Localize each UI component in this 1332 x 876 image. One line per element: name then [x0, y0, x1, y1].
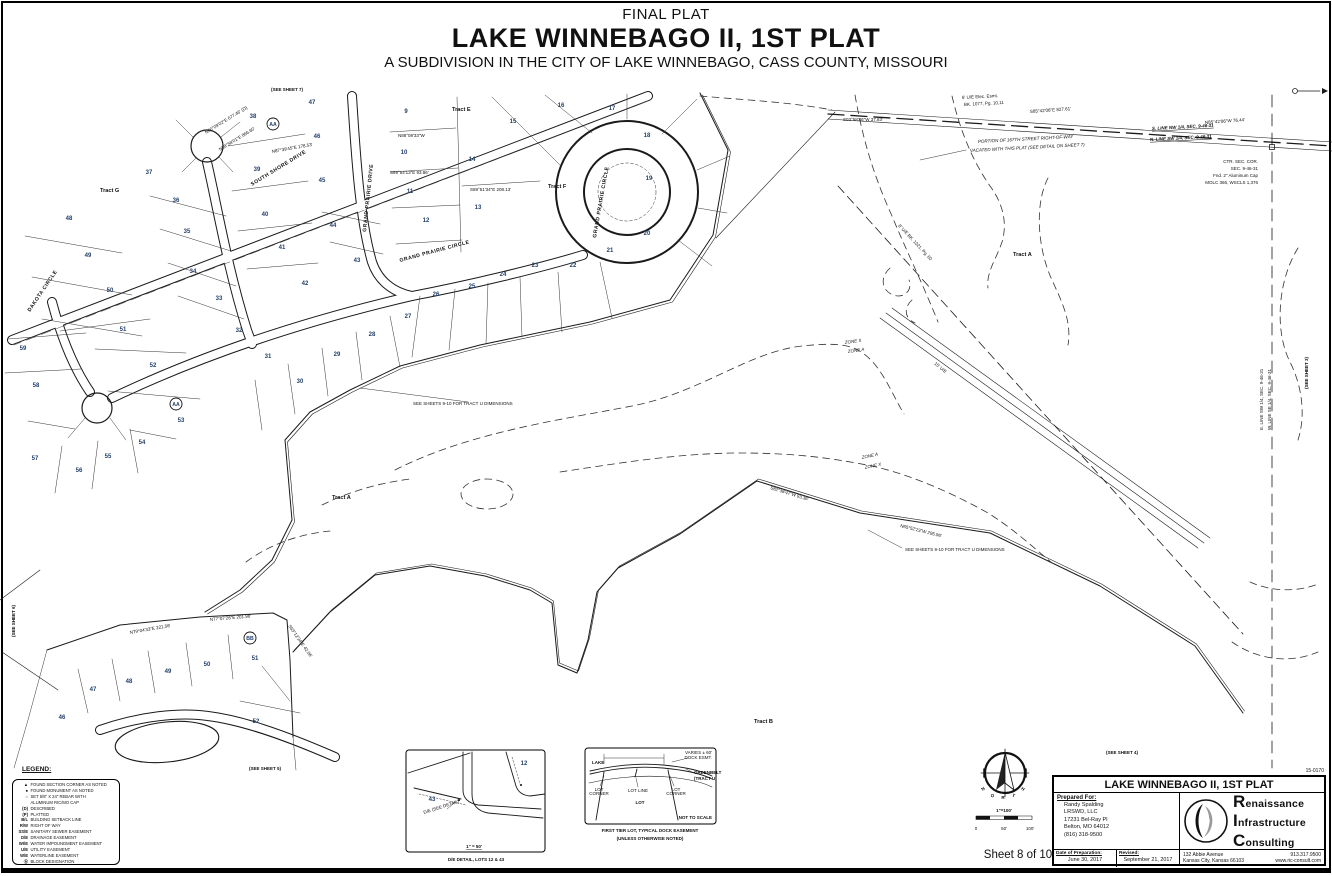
map-note: S89°54'13"E 93.86' [390, 170, 429, 175]
lot-number: 59 [20, 346, 27, 352]
lot-number: 30 [297, 379, 304, 385]
lot-number: 48 [66, 216, 73, 222]
firm-name: Renaissance Infrastructure Consulting [1229, 792, 1306, 849]
north-letter: N [980, 786, 986, 792]
date-value: June 30, 2017 [1056, 856, 1114, 863]
map-note: ZONE X [843, 338, 862, 346]
lot-number: 50 [107, 288, 114, 294]
lot-number: 39 [254, 167, 261, 173]
map-note: 1" = 50' [466, 844, 482, 849]
map-note: FIRST TIER LOT, TYPICAL DOCK EASEMENT [602, 828, 699, 833]
scale-text: 1"=100' [996, 808, 1012, 813]
map-note: CORNER [589, 791, 609, 796]
legend-box: ▲FOUND SECTION CORNER AS NOTED●FOUND MON… [12, 779, 120, 865]
client-address-line: 17231 Bel-Ray Pl [1064, 817, 1176, 824]
legend-item: ○SET 5/8" X 24" REBAR WITH [15, 794, 117, 800]
firm-address: 132 Abbie Avenue Kansas City, Kansas 661… [1183, 852, 1244, 865]
lot-number: 49 [85, 253, 92, 259]
map-note: CTR. SEC. COR. [1223, 159, 1258, 164]
scale-tick-label: 100' [1026, 826, 1035, 831]
client-address: Randy SpaldingLRSWD, LLC17231 Bel-Ray Pl… [1057, 801, 1176, 839]
lot-number: 12 [423, 218, 430, 224]
map-note: (UNLESS OTHERWISE NOTED) [617, 836, 684, 841]
tract-label: Tract A [332, 495, 351, 501]
lot-number: 44 [330, 223, 337, 229]
legend-item: ⒶBLOCK DESIGNATION [15, 859, 117, 865]
prepared-for-section: Prepared For: Randy SpaldingLRSWD, LLC17… [1054, 793, 1179, 849]
tract-label: Tract A [1013, 252, 1032, 258]
client-address-line: (816) 318-9500 [1064, 832, 1176, 839]
map-note: (SEE SHEET 4) [1106, 750, 1139, 755]
map-note: (SEE SHEET 5) [249, 766, 282, 771]
firm-word-3: Consulting [1233, 831, 1306, 850]
lot-number: 13 [475, 205, 482, 211]
map-note: N85°42'06"W 76.44' [1205, 117, 1246, 125]
map-note: MOLC 366, WSCLS 1,376 [1205, 180, 1258, 185]
lot-number: 17 [609, 106, 616, 112]
map-note: ZONE A [846, 347, 864, 354]
map-note: (SEE SHEET 6) [11, 604, 16, 637]
lot-number: 25 [469, 284, 476, 290]
lot-number: 58 [33, 383, 40, 389]
lot-number: 55 [105, 454, 112, 460]
tract-label: Tract F [548, 184, 567, 190]
ric-logo-icon [1183, 798, 1229, 844]
lot-number: 24 [500, 272, 507, 278]
lot-number: 33 [216, 296, 223, 302]
map-note: ZONE X [863, 461, 882, 470]
map-note: S63°12'24"E 42.06' [287, 624, 313, 659]
lot-number: 26 [433, 292, 440, 298]
map-note: 12 [521, 761, 528, 767]
lot-number: 43 [354, 258, 361, 264]
lot-number: 51 [252, 656, 259, 662]
map-note: Fnd. 2" Aluminum Cap [1213, 173, 1258, 178]
lot-number: 28 [369, 332, 376, 338]
tract-label: Tract E [452, 107, 471, 113]
lot-number: 47 [309, 100, 316, 106]
lot-number: 9 [404, 109, 408, 115]
scale-tick-label: 50' [1001, 826, 1007, 831]
firm-word-2: Infrastructure [1233, 811, 1306, 830]
lot-number: 47 [90, 687, 97, 693]
map-note: LOT LINE [628, 788, 648, 793]
client-address-line: Belton, MO 64012 [1064, 824, 1176, 831]
title-block: LAKE WINNEBAGO II, 1ST PLAT Prepared For… [1052, 775, 1326, 866]
lot-number: 16 [558, 103, 565, 109]
map-note: LOT [636, 800, 645, 805]
lot-number: 56 [76, 468, 83, 474]
map-note: N65°52'23"W 295.96' [900, 523, 943, 538]
lot-number: 40 [262, 212, 269, 218]
client-address-line: LRSWD, LLC [1064, 809, 1176, 816]
map-note: S85°42'06"E 827.61' [1030, 106, 1072, 114]
map-note: N87°39'45"E 178.53' [271, 142, 313, 154]
date-of-preparation-cell: Date of Preparation: June 30, 2017 [1054, 850, 1116, 867]
map-note: 43 [429, 797, 436, 803]
firm-contact: 913.317.9500 www.ric-consult.com [1275, 852, 1321, 865]
map-note: CORNER [666, 791, 686, 796]
revised-value: September 21, 2017 [1119, 856, 1177, 863]
lot-number: 52 [150, 363, 157, 369]
client-address-line: Randy Spalding [1064, 802, 1176, 809]
block-designation: BB [246, 636, 254, 642]
lot-number: 51 [120, 327, 127, 333]
lot-number: 15 [510, 119, 517, 125]
map-texts: 9101112131415161718192021222324252627282… [11, 87, 1309, 862]
map-note: (SEE SHEET 3) [1304, 356, 1309, 389]
map-note: VACATED WITH THIS PLAT (SEE DETAIL ON SH… [970, 142, 1086, 153]
map-note: 6' U/E Elec. Esmt. [962, 93, 998, 100]
legend-title: LEGEND: [22, 766, 51, 773]
lot-number: 41 [279, 245, 286, 251]
firm-word-1: Renaissance [1233, 792, 1306, 811]
map-note: DOCK ESMT. [684, 755, 712, 760]
map-note: BK. 1077, Pg. 10,11 [964, 100, 1005, 107]
easement-lines [838, 186, 1243, 634]
map-note: LAKE [592, 760, 604, 765]
lot-number: 35 [184, 229, 191, 235]
revised-cell: Revised: September 21, 2017 [1116, 850, 1179, 867]
lot-number: 29 [334, 352, 341, 358]
map-note: SEE SHEETS 9-10 FOR TRACT U DIMENSIONS [905, 547, 1005, 552]
plat-boundaries [0, 93, 1245, 737]
map-note: N79°04'33"E 221.56' [129, 623, 171, 635]
flood-contour-lines [246, 95, 1318, 659]
plat-sheet: { "header": { "eyebrow": "FINAL PLAT", "… [0, 0, 1332, 876]
lot-number: 19 [646, 176, 653, 182]
firm-contact-row: 132 Abbie Avenue Kansas City, Kansas 661… [1180, 849, 1324, 866]
lot-number: 20 [644, 231, 651, 237]
map-note: 8' U/E BK. 1021, Pg. 60 [897, 223, 933, 261]
lot-number: 10 [401, 150, 408, 156]
map-note: ZONE A [860, 452, 878, 461]
map-note: GREENBELT [694, 770, 722, 775]
lot-number: 21 [607, 248, 614, 254]
map-note: SEE SHEETS 9-10 FOR TRACT U DIMENSIONS [413, 401, 513, 406]
legend-symbol: Ⓐ [15, 859, 31, 865]
block-designation: AA [269, 122, 277, 128]
map-note: E. LINE SW 1/4, SEC. 9-46-31 [1259, 368, 1264, 430]
lot-number: 23 [532, 263, 539, 269]
lot-number: 18 [644, 133, 651, 139]
lot-number: 27 [405, 314, 412, 320]
culdesac-dakota [82, 393, 112, 423]
road-casings [12, 96, 648, 757]
lot-number: 48 [126, 679, 133, 685]
lot-number: 36 [173, 198, 180, 204]
lot-number: 11 [407, 189, 414, 195]
legend-item-text: BLOCK DESIGNATION [31, 859, 118, 865]
lot-number: 34 [190, 269, 197, 275]
lot-number: 54 [139, 440, 146, 446]
map-note: (SEE SHEET 7) [271, 87, 304, 92]
map-note: W. LINE SE 1/4, SEC. 9-46-31 [1267, 368, 1272, 430]
plat-map: 9101112131415161718192021222324252627282… [0, 0, 1332, 876]
lot-number: 45 [319, 178, 326, 184]
lot-number: 31 [265, 354, 272, 360]
tract-label: Tract B [754, 719, 773, 725]
map-note: S03°58'46"W 37.83' [843, 117, 883, 122]
road-centers [12, 96, 648, 757]
north-letter: T [1011, 793, 1016, 799]
map-note: NOT TO SCALE [679, 815, 712, 820]
tract-label: Tract G [100, 188, 119, 194]
lot-number: 52 [253, 719, 260, 725]
lot-number: 46 [314, 134, 321, 140]
lot-number: 38 [250, 114, 257, 120]
lot-number: 37 [146, 170, 153, 176]
map-note: S89°51'34"E 208.13' [470, 187, 511, 192]
map-note: 15' U/E [933, 361, 947, 374]
block-designation: AA [172, 402, 180, 408]
map-note: N59°58'01"E 866.60' [218, 126, 256, 152]
map-note: N60°09'02"E 677.46' (D) [204, 105, 249, 135]
map-note: (TRACT U) [694, 776, 717, 781]
lot-number: 46 [59, 715, 66, 721]
lot-lines [5, 94, 966, 770]
lot-number: 49 [165, 669, 172, 675]
lot-number: 14 [469, 157, 476, 163]
lot-number: 57 [32, 456, 39, 462]
map-note: N77°07'26"E 201.98' [210, 613, 252, 622]
lot-number: 53 [178, 418, 185, 424]
lot-number: 22 [570, 263, 577, 269]
lot-number: 50 [204, 662, 211, 668]
bar-scale [976, 816, 1032, 820]
project-number: 15-0170 [1256, 768, 1324, 774]
firm-section: Renaissance Infrastructure Consulting [1180, 793, 1324, 849]
section-lines [828, 88, 1332, 768]
legend-symbol: ○ [15, 794, 31, 800]
dates-section: Date of Preparation: June 30, 2017 Revis… [1054, 849, 1179, 867]
title-block-title: LAKE WINNEBAGO II, 1ST PLAT [1054, 777, 1324, 793]
legend-item-text: SET 5/8" X 24" REBAR WITH [31, 794, 118, 800]
map-note: SEC. 9-46-31 [1231, 166, 1259, 171]
firm-website: www.ric-consult.com [1275, 858, 1321, 865]
map-note: S82°38'47"W 93.36' [770, 485, 810, 501]
lot-number: 32 [236, 328, 243, 334]
north-letter: O [990, 792, 995, 798]
map-note: N88°08'33"W [398, 133, 426, 138]
lot-number: 42 [302, 281, 309, 287]
firm-address-line2: Kansas City, Kansas 66103 [1183, 858, 1244, 865]
loop-road-grand-prairie-circle [570, 135, 684, 249]
scale-tick-label: 0 [975, 826, 978, 831]
map-note: D/E DETAIL, LOTS 12 & 43 [448, 857, 505, 862]
